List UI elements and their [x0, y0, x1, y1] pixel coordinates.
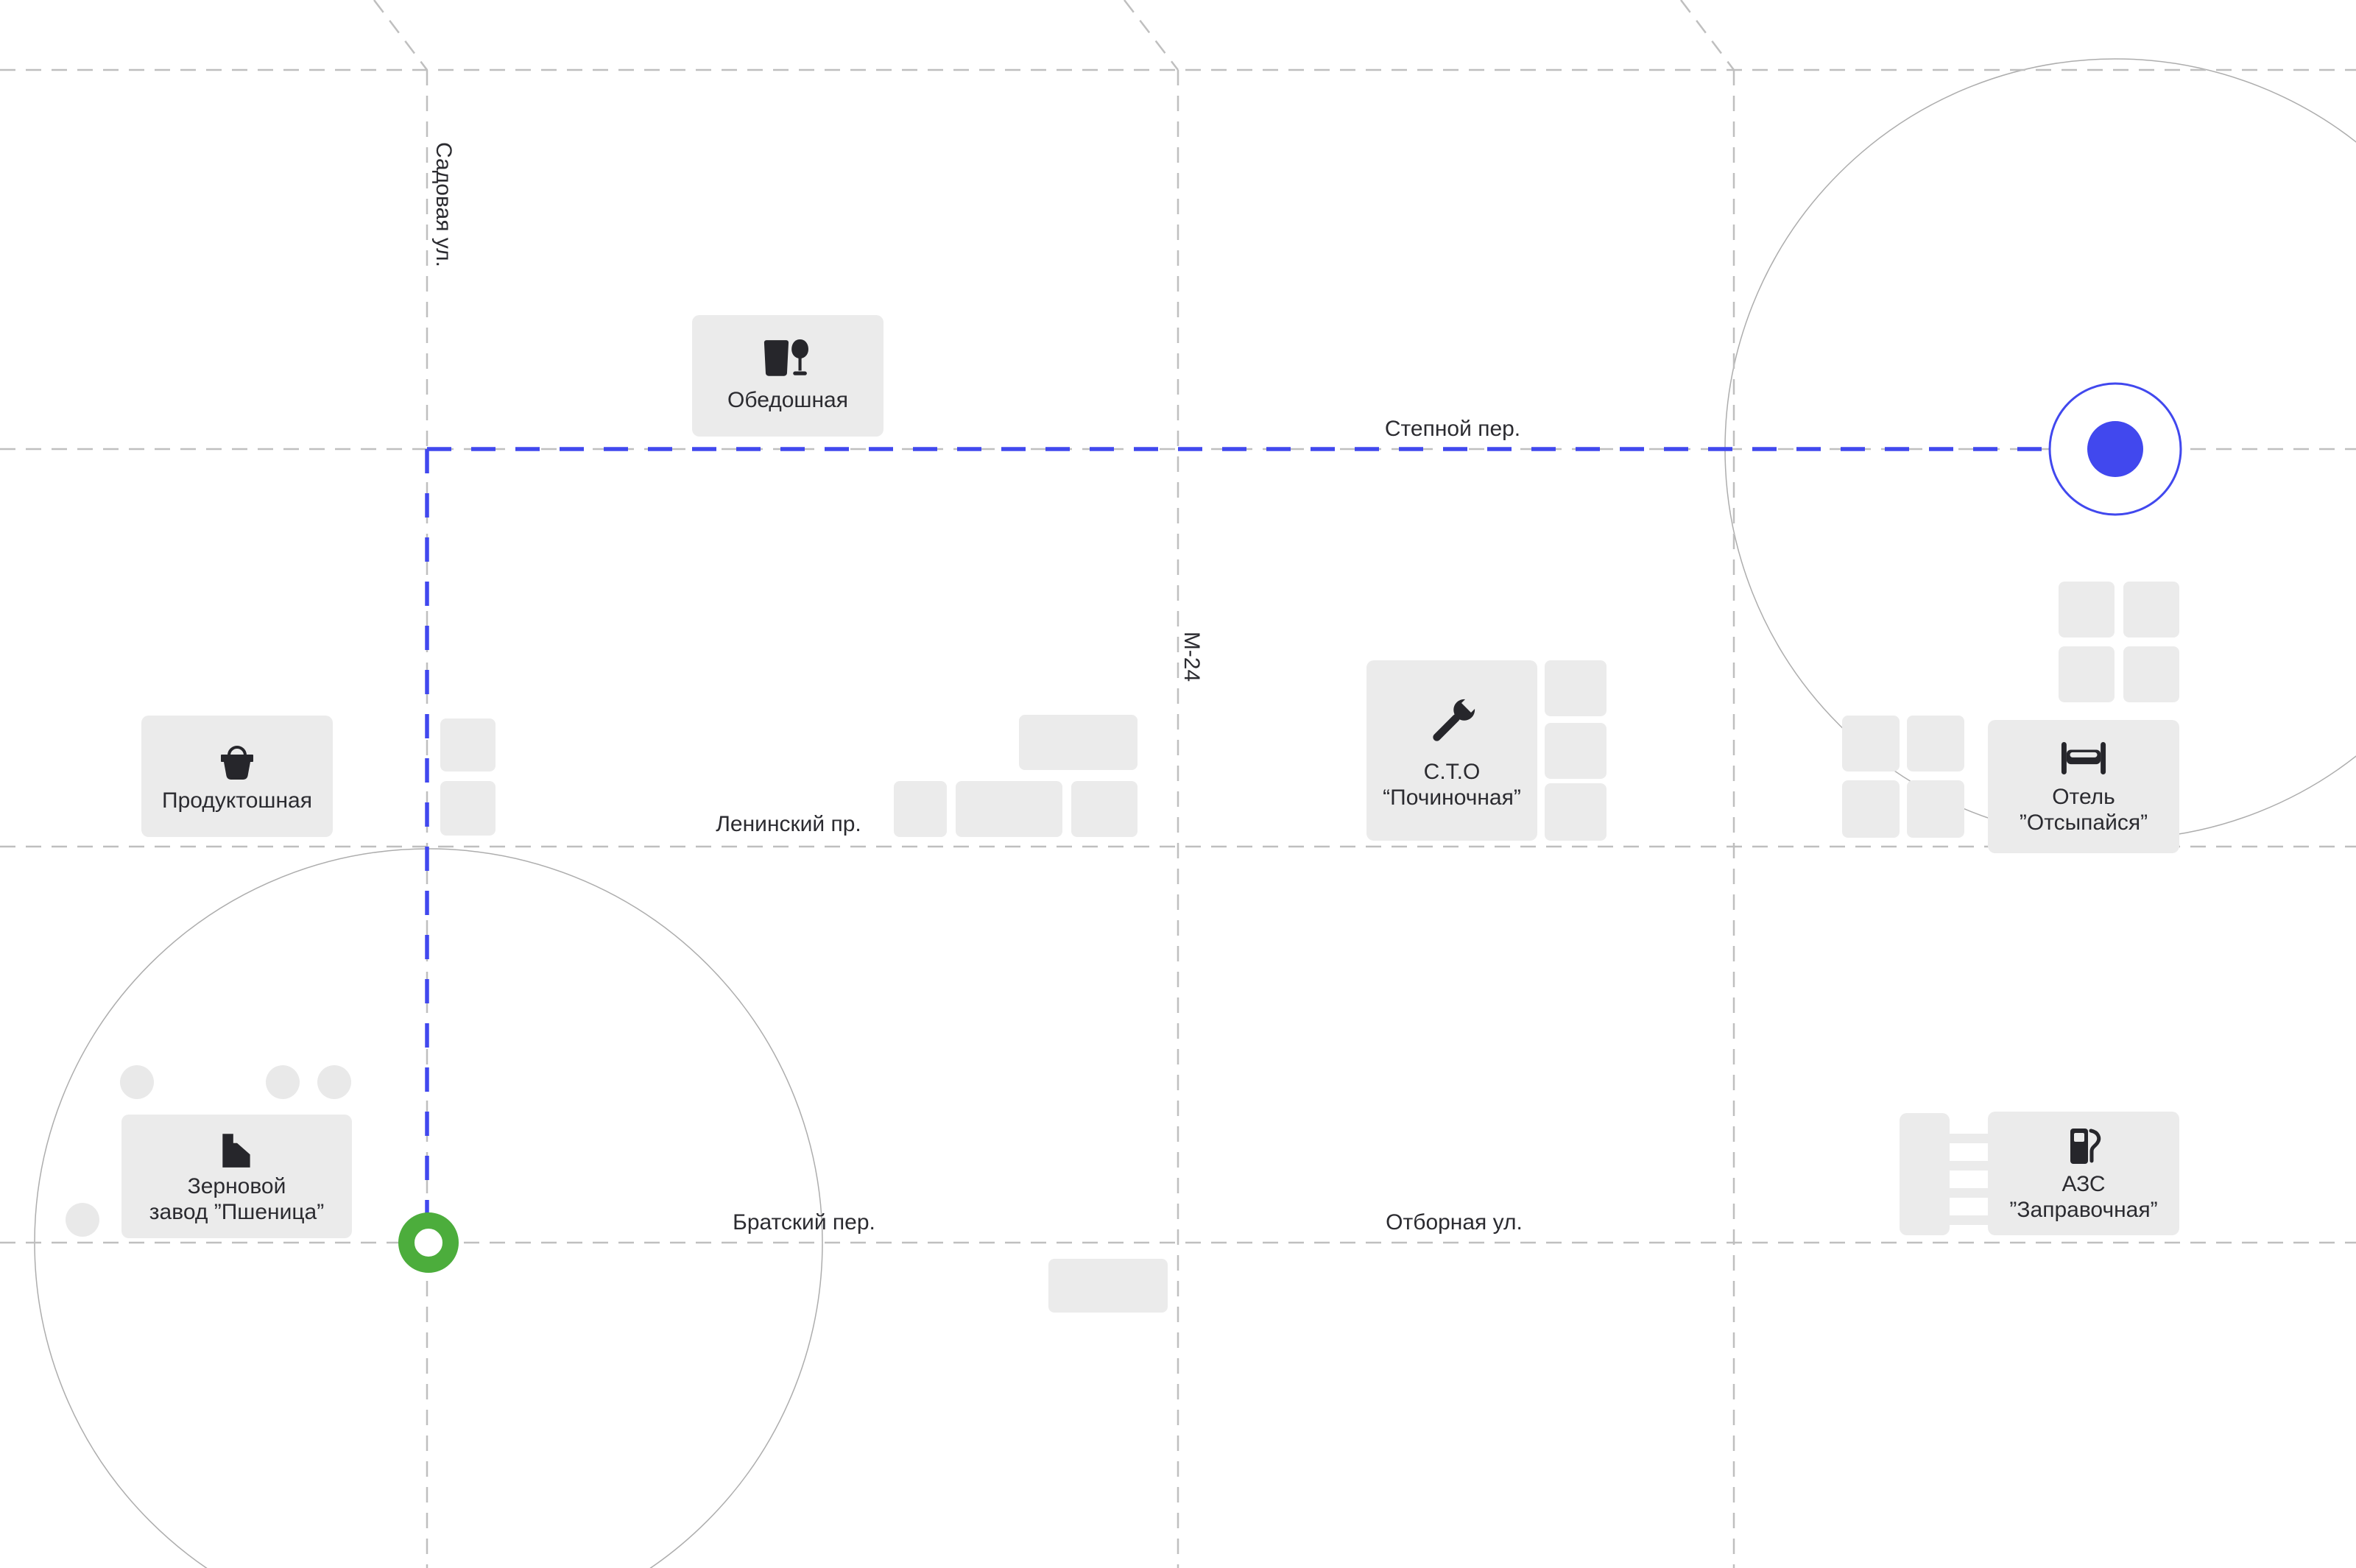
building [440, 718, 495, 771]
building [1071, 781, 1138, 837]
building [1545, 660, 1606, 716]
building [1019, 715, 1138, 770]
poi-label: Отель ”Отсыпайся” [2020, 784, 2148, 836]
wrench-icon [1421, 691, 1483, 753]
road-sadovaya-diagonal [374, 0, 427, 70]
building [1545, 723, 1606, 779]
street-label-bratsky: Братский пер. [733, 1209, 875, 1236]
silo-dot [120, 1065, 154, 1099]
street-label-otbornaya: Отборная ул. [1386, 1209, 1523, 1236]
poi-azs-zapravochnaya[interactable]: АЗС ”Заправочная” [1988, 1112, 2179, 1235]
poi-grain-factory[interactable]: Зерновой завод ”Пшеница” [121, 1115, 352, 1238]
street-label-m24: М-24 [1178, 632, 1205, 682]
street-label-stepnoy: Степной пер. [1385, 416, 1520, 442]
restaurant-icon [760, 339, 816, 381]
road-m24-diagonal [1124, 0, 1178, 70]
building [1907, 780, 1964, 838]
building [2059, 646, 2115, 702]
building [1545, 783, 1606, 841]
poi-hotel-otsypaysya[interactable]: Отель ”Отсыпайся” [1988, 720, 2179, 853]
bed-icon [2056, 738, 2111, 778]
building [2059, 582, 2115, 638]
poi-obedoshnaya[interactable]: Обедошная [692, 315, 883, 437]
road-east-diagonal [1681, 0, 1734, 70]
fuel-lane [1948, 1215, 1988, 1225]
map-canvas: Садовая ул. М-24 Степной пер. Ленинский … [0, 0, 2356, 1568]
building [1900, 1113, 1950, 1235]
fuel-lane [1948, 1134, 1988, 1143]
silo-dot [266, 1065, 300, 1099]
building [1842, 716, 1900, 771]
building [440, 781, 495, 836]
building [1048, 1259, 1168, 1313]
building [1842, 780, 1900, 838]
poi-label: АЗС ”Заправочная” [2009, 1171, 2157, 1223]
poi-sto-pochinochnaya[interactable]: С.Т.О “Починочная” [1366, 660, 1537, 841]
poi-label: Обедошная [727, 387, 848, 413]
poi-label: С.Т.О “Починочная” [1383, 759, 1521, 811]
poi-label: Продуктошная [162, 788, 312, 813]
building [1907, 716, 1964, 771]
street-label-leninsky: Ленинский пр. [716, 811, 861, 838]
building [956, 781, 1062, 837]
fuel-lane [1948, 1188, 1988, 1198]
poi-label: Зерновой завод ”Пшеница” [149, 1173, 324, 1225]
building [2123, 646, 2179, 702]
basket-icon [213, 739, 261, 782]
fuel-icon [2060, 1124, 2107, 1168]
factory-icon [211, 1128, 263, 1170]
building [894, 781, 947, 837]
fuel-lane [1948, 1161, 1988, 1170]
building [2123, 582, 2179, 638]
silo-dot [317, 1065, 351, 1099]
silo-dot [66, 1203, 99, 1237]
start-marker[interactable] [406, 1221, 451, 1265]
poi-produktoshnaya[interactable]: Продуктошная [141, 716, 333, 837]
street-label-sadovaya: Садовая ул. [430, 142, 456, 267]
destination-marker[interactable] [2087, 421, 2143, 477]
